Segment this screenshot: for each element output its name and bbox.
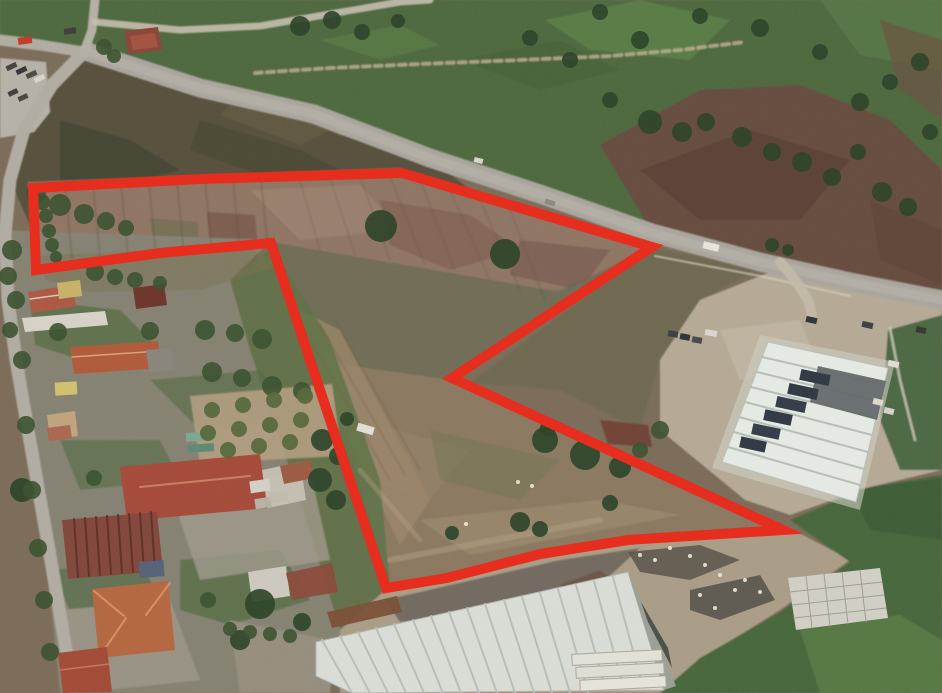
- grain: [0, 0, 942, 693]
- satellite-map-view[interactable]: [0, 0, 942, 693]
- grain-overlay: [0, 0, 942, 693]
- map-viewport[interactable]: [0, 0, 942, 693]
